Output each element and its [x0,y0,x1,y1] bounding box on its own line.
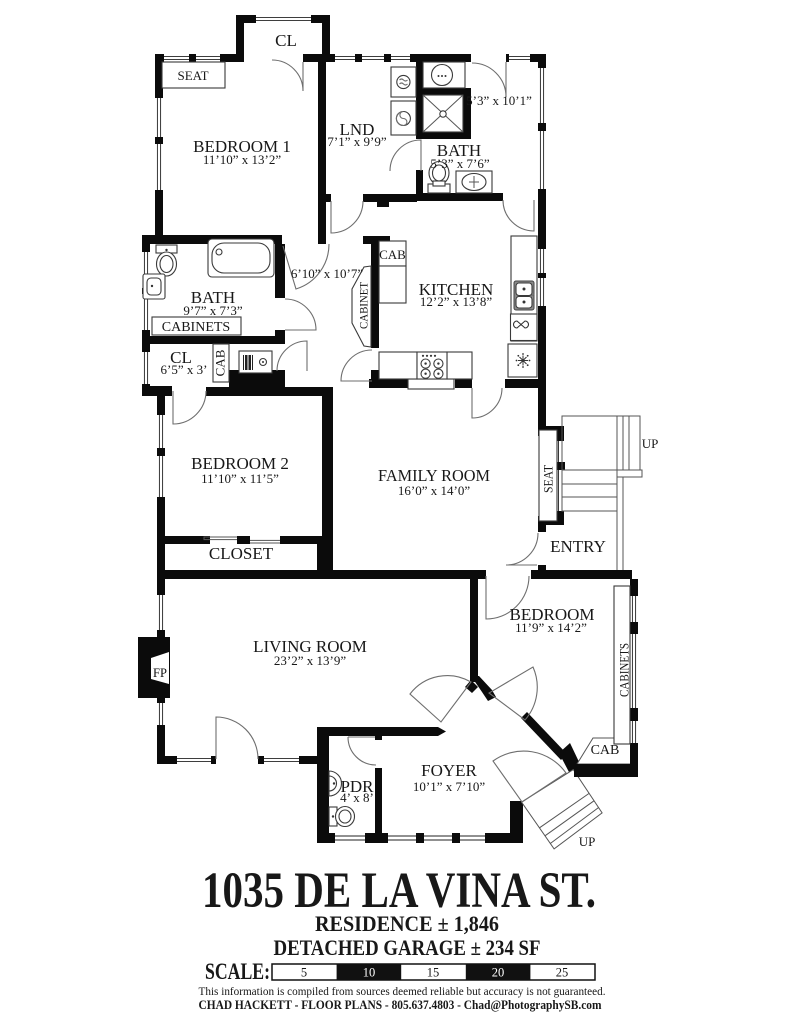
svg-text:UP: UP [579,834,596,849]
svg-text:FP: FP [153,666,167,680]
svg-text:16’0” x 14’0”: 16’0” x 14’0” [398,483,470,498]
svg-text:UP: UP [642,436,659,451]
svg-text:CABINET: CABINET [357,281,371,329]
svg-text:7’1” x 9’9”: 7’1” x 9’9” [327,134,386,149]
svg-text:FOYER: FOYER [421,761,477,780]
svg-text:5’3” x 7’6”: 5’3” x 7’6” [430,156,489,171]
svg-text:CABINETS: CABINETS [617,643,632,697]
svg-text:12’2” x 13’8”: 12’2” x 13’8” [420,294,492,309]
svg-text:5’3” x 10’1”: 5’3” x 10’1” [466,93,532,108]
svg-text:5: 5 [301,966,307,980]
svg-text:This information is compiled f: This information is compiled from source… [199,984,606,998]
svg-text:25: 25 [556,966,569,980]
svg-text:SEAT: SEAT [541,465,556,493]
svg-text:CHAD HACKETT - FLOOR PLANS - 8: CHAD HACKETT - FLOOR PLANS - 805.637.480… [199,997,602,1012]
svg-text:10: 10 [363,966,376,980]
svg-text:ENTRY: ENTRY [550,537,606,556]
svg-text:6’5” x 3’: 6’5” x 3’ [161,362,208,377]
svg-text:RESIDENCE ± 1,846: RESIDENCE ± 1,846 [315,911,499,936]
svg-text:CLOSET: CLOSET [209,544,274,563]
svg-text:CAB: CAB [379,247,406,262]
svg-text:10’1” x 7’10”: 10’1” x 7’10” [413,779,485,794]
svg-text:DETACHED GARAGE ± 234 SF: DETACHED GARAGE ± 234 SF [274,935,541,960]
svg-text:CAB: CAB [591,743,620,758]
svg-text:CABINETS: CABINETS [162,320,230,335]
svg-text:23’2” x 13’9”: 23’2” x 13’9” [274,653,346,668]
svg-text:6’10” x 10’7”: 6’10” x 10’7” [291,266,363,281]
svg-text:CL: CL [275,31,297,50]
svg-text:11’9” x 14’2”: 11’9” x 14’2” [515,620,587,635]
svg-text:20: 20 [492,966,505,980]
svg-text:11’10” x 13’2”: 11’10” x 13’2” [203,152,281,167]
svg-text:4’ x 8’: 4’ x 8’ [340,790,374,805]
svg-text:SEAT: SEAT [177,68,208,83]
svg-text:15: 15 [427,966,440,980]
svg-text:9’7” x 7’3”: 9’7” x 7’3” [183,303,242,318]
svg-text:SCALE:: SCALE: [205,959,270,984]
svg-text:CAB: CAB [213,349,228,376]
svg-text:11’10” x 11’5”: 11’10” x 11’5” [201,471,279,486]
